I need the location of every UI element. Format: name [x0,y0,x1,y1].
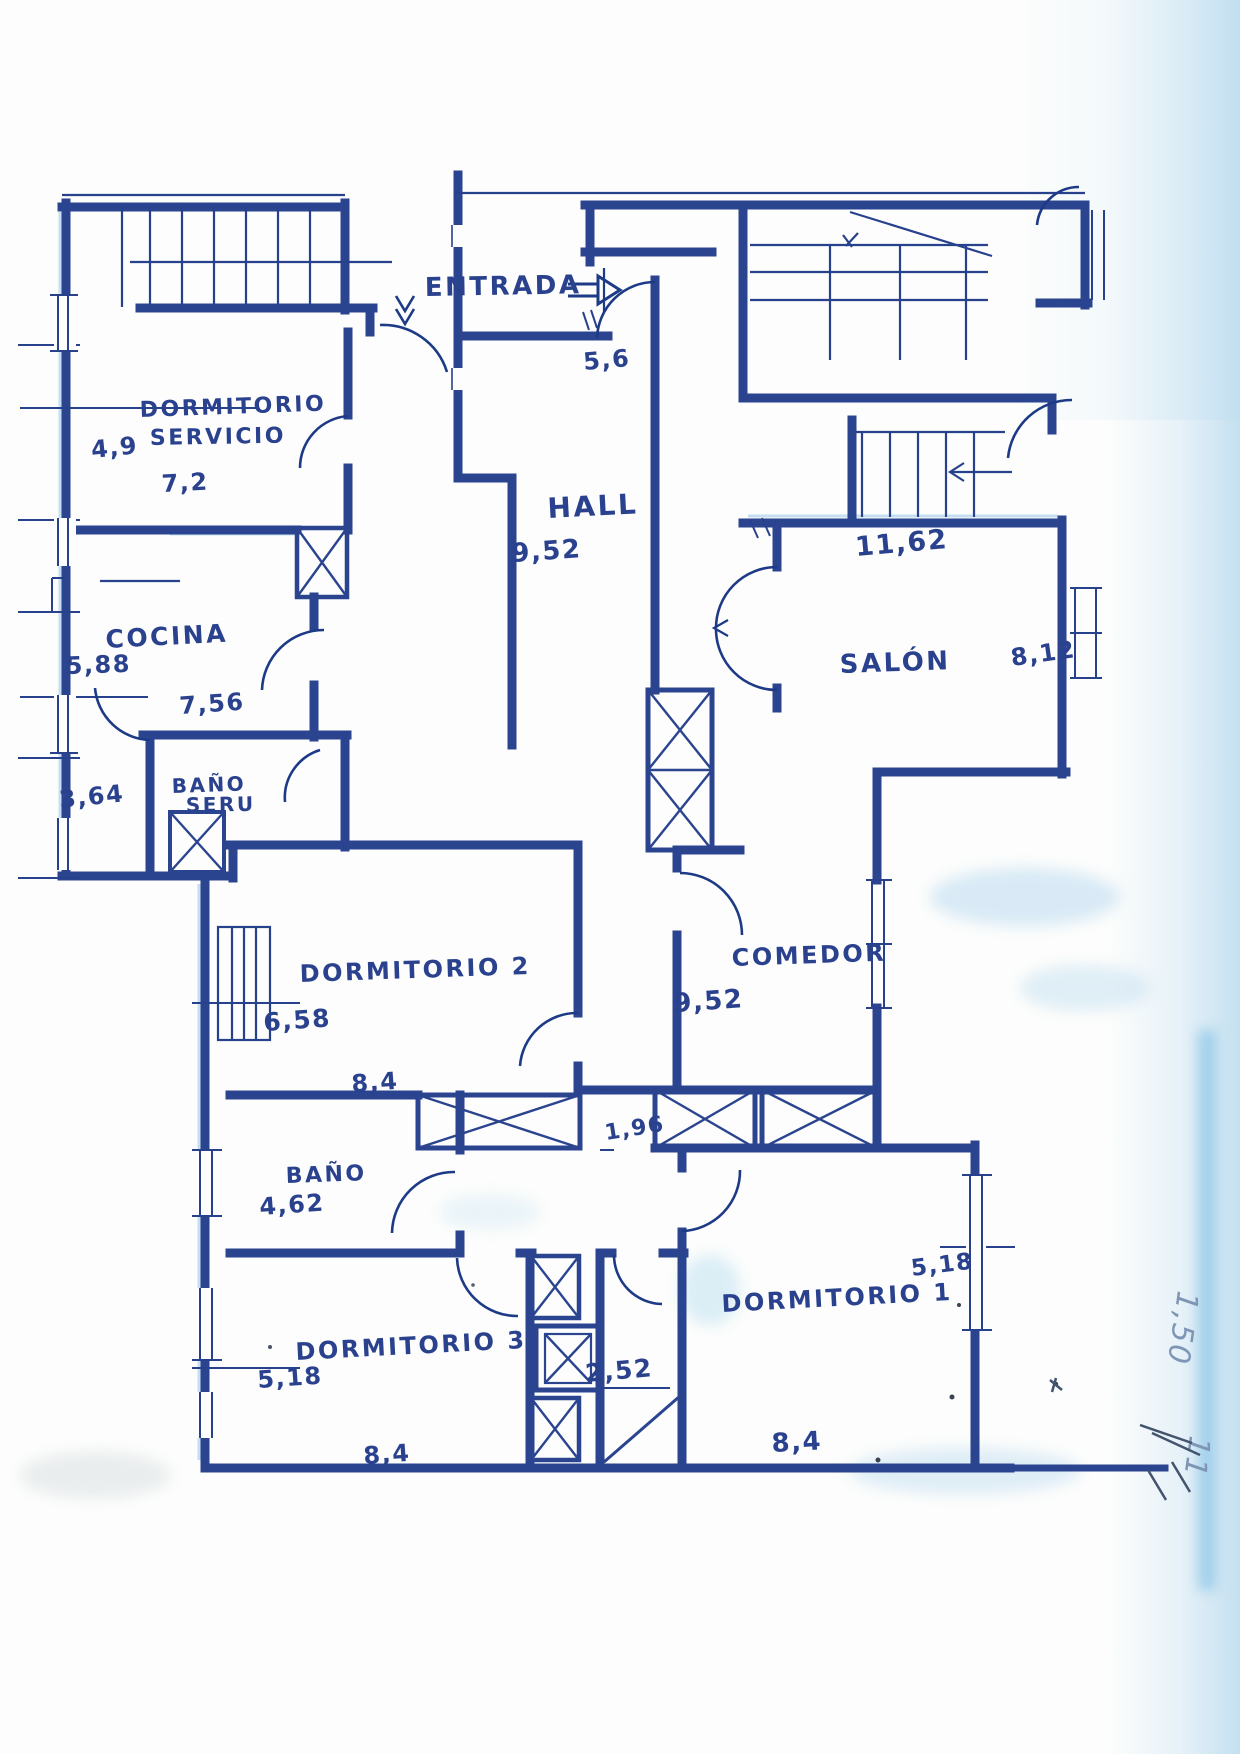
pen-scratches [1050,1378,1200,1500]
hall-shaft-x-box [648,690,712,850]
closet-x-box-right [762,1090,877,1148]
dim-bano-serv-width: 3,64 [58,779,126,814]
dim-salon-width: 11,62 [854,524,949,563]
dim-dormitorio-servicio-length: 7,2 [161,468,209,498]
dim-salon-depth: 8,12 [1009,635,1077,672]
room-label-salon: SALÓN [839,644,951,680]
door-arc-entrada [597,282,655,338]
door-arc-bano [392,1172,455,1233]
stair-landing-grid [750,212,992,360]
dim-cocina-width: 5,88 [65,650,131,680]
shaft-boxes [170,528,877,1462]
room-label-comedor: COMEDOR [731,939,886,972]
dim-bano-width: 4,62 [258,1189,325,1221]
room-label-bano-serv-2: SERU [186,792,256,817]
room-label-dormitorio1: DORMITORIO 1 [721,1278,953,1318]
closet-x-box-left [418,1095,580,1148]
stairs-mid-right [852,432,1012,517]
room-label-dormitorio-servicio-1: DORMITORIO [139,392,326,423]
chimney-block [218,927,270,1040]
door-arc-bano-serv [285,750,320,802]
dim-comedor-length: 9,52 [672,984,744,1019]
room-label-bano: BAÑO [285,1160,367,1189]
dim-dormitorio1-length: 8,4 [771,1426,823,1459]
dim-dormitorio3-length: 8,4 [362,1439,411,1470]
margin-note-top: 1,50 [1160,1289,1205,1368]
stairs-top-left [122,207,392,307]
door-arc-dorm2 [520,1013,578,1066]
dim-hall-length: 9,52 [510,534,582,569]
room-label-dormitorio-servicio-2: SERVICIO [150,424,286,451]
door-arc-dorm3 [457,1258,518,1316]
room-label-cocina: COCINA [105,619,229,654]
floor-plan-drawing: ENTRADA 5,6 DORMITORIO SERVICIO 4,9 7,2 … [0,0,1240,1754]
room-label-dormitorio3: DORMITORIO 3 [295,1326,527,1366]
room-label-dormitorio2: DORMITORIO 2 [299,952,531,988]
trastero-diagonal [604,1396,680,1462]
room-label-hall: HALL [547,487,639,525]
shaft-column-box-top [531,1256,579,1318]
door-arc-landing-right [1008,400,1072,458]
closet-x-box-mid [655,1090,755,1148]
door-arc-stair-exit [380,325,447,372]
room-label-entrada: ENTRADA [425,270,582,303]
dim-dormitorio3-width: 5,18 [256,1362,323,1394]
door-arc-comedor [680,873,742,935]
dim-dormitorio2-length: 8,4 [350,1067,399,1098]
banoserv-shaft-x-box [170,812,224,872]
dim-dormitorio1-width: 5,18 [910,1249,975,1282]
cocina-shaft-x-box [297,528,347,597]
floor-plan-page: ENTRADA 5,6 DORMITORIO SERVICIO 4,9 7,2 … [0,0,1240,1754]
dim-dormitorio-servicio-width: 4,9 [90,431,140,464]
door-arc-salon-double-bottom [716,629,777,690]
dim-dormitorio2-width: 6,58 [262,1003,332,1037]
stairs-down-arrow-icon [396,296,414,324]
door-arc-salon-double-top [716,567,777,628]
dim-dormitorio1-shaft: 2,52 [584,1353,654,1388]
shaft-column-box-bottom [531,1398,579,1460]
door-arc-dorm1 [682,1170,740,1231]
door-arc-dorm-servicio [300,416,348,468]
dim-cocina-length: 7,56 [178,688,245,720]
door-arc-trastero [614,1255,662,1304]
dim-entrada-width: 5,6 [582,344,631,376]
